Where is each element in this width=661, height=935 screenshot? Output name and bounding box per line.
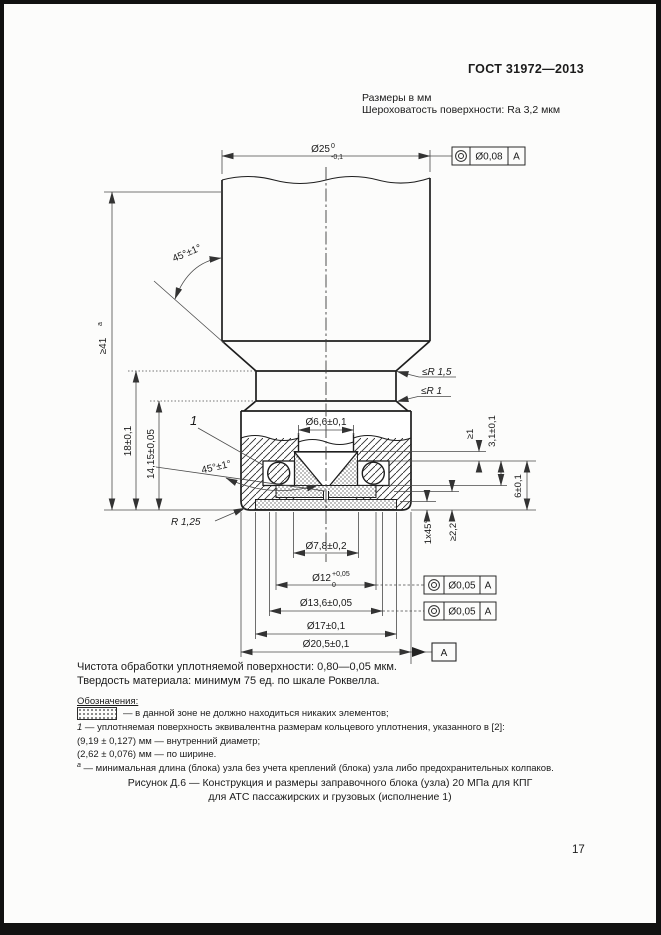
dim-d136: Ø13,6±0,05 (300, 598, 353, 609)
note-surface-finish: Чистота обработки уплотняемой поверхност… (77, 661, 397, 673)
dim-h31: 3,1±0,1 (487, 415, 498, 447)
dim-len41-sup: а (97, 322, 104, 326)
legend-stipple-text: — в данной зоне не должно находиться ник… (123, 708, 389, 719)
stipple-swatch-icon (77, 707, 117, 720)
fcf2-tol: Ø0,05 (448, 607, 476, 618)
fcf1-tol: Ø0,05 (448, 581, 476, 592)
figure-caption-line1: Рисунок Д.6 — Конструкция и размеры запр… (4, 777, 656, 789)
dim-len41: ≥41 (98, 337, 109, 354)
dim-d17: Ø17±0,1 (307, 621, 346, 632)
dim-ge22: ≥2,2 (448, 523, 459, 541)
oring-groove-right (358, 461, 390, 486)
legend-stipple-row: — в данной зоне не должно находиться ник… (77, 707, 389, 720)
fcf-top-datum: A (513, 152, 520, 163)
legend-item-2: (9,19 ± 0,127) мм — внутренний диаметр; (77, 736, 260, 747)
page-number: 17 (572, 844, 585, 856)
dim-h6: 6±0,1 (513, 474, 524, 498)
note-hardness: Твердость материала: минимум 75 ед. по ш… (77, 675, 380, 687)
dim-d25-sub: -0,1 (331, 154, 343, 161)
dim-d25: Ø25 (311, 144, 330, 155)
legend-title: Обозначения: (77, 696, 138, 707)
figure-caption-line2: для АТС пассажирских и грузовых (исполне… (4, 791, 656, 803)
dim-d25-sup: 0 (331, 143, 335, 150)
dim-angle-top: 45°±1° (171, 243, 203, 265)
dim-d78: Ø7,8±0,2 (305, 541, 347, 552)
dim-d12: Ø12 (312, 573, 331, 584)
oring-groove-left (263, 461, 295, 486)
oring-section-left (268, 462, 290, 484)
dim-r125: R 1,25 (171, 517, 201, 528)
dim-len1415: 14,15±0,05 (146, 429, 157, 479)
callout-1: 1 (190, 413, 197, 428)
dim-len18: 18±0,1 (123, 425, 134, 456)
legend-item-4-text: — минимальная длина (блока) узла без уче… (81, 763, 554, 774)
dim-angle-mid: 45°±1° (201, 459, 233, 477)
datum-a-flag (412, 643, 456, 661)
legend-item-4: а — минимальная длина (блока) узла без у… (77, 762, 554, 774)
dim-d205: Ø20,5±0,1 (303, 639, 350, 650)
document-page: ГОСТ 31972—2013 Размеры в мм Шероховатос… (0, 0, 661, 935)
dim-d12-sub: 0 (332, 582, 336, 589)
dim-ch145: 1x45° (423, 520, 434, 545)
dim-ge1: ≥1 (465, 429, 476, 440)
fcf-top-tol: Ø0,08 (475, 152, 503, 163)
legend-item-3: (2,62 ± 0,076) мм — по ширине. (77, 749, 216, 760)
datum-a-label: A (441, 648, 448, 659)
legend-item-1-text: — уплотняемая поверхность эквивалентна р… (82, 722, 504, 733)
legend-item-1: 1 — уплотняемая поверхность эквивалентна… (77, 722, 505, 733)
fcf2-datum: A (485, 607, 492, 618)
dim-r15: ≤R 1,5 (422, 367, 452, 378)
fcf1-datum: A (485, 581, 492, 592)
oring-section-right (362, 462, 384, 484)
dim-r1: ≤R 1 (421, 386, 442, 397)
dim-d66: Ø6,6±0,1 (305, 417, 347, 428)
dim-d12-sup: +0,05 (332, 571, 350, 578)
